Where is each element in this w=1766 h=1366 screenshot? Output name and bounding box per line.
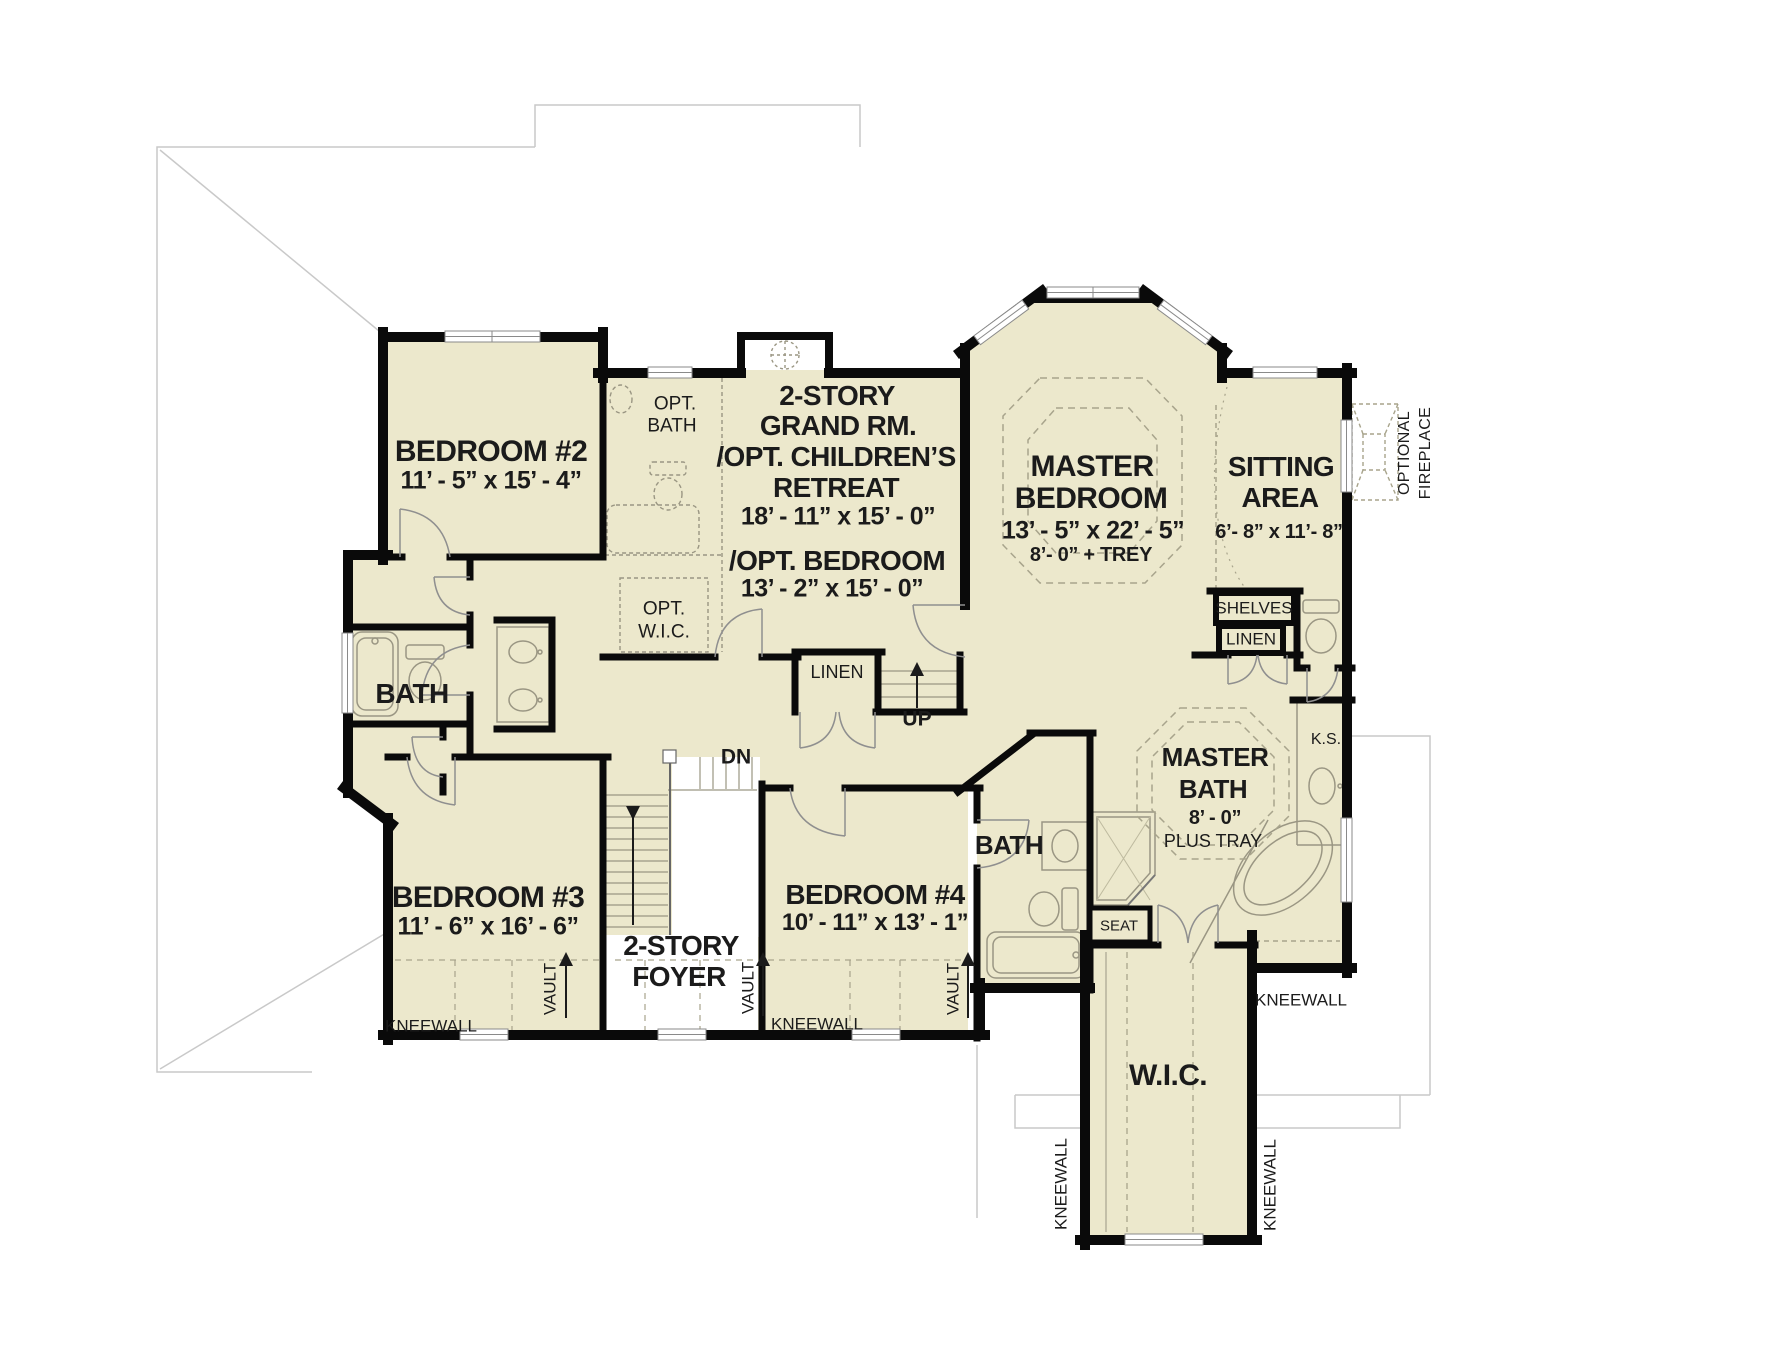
sitting-area-dims: 6’- 8” x 11’- 8” [1215,522,1343,542]
wic-name: W.I.C. [1129,1061,1207,1091]
master-bath-dims: 8’ - 0” [1189,808,1241,828]
bath-center-name: BATH [975,832,1043,858]
optional-fireplace-line1: OPTIONAL [1395,407,1416,500]
master-suite-area [965,291,1352,1240]
opt-wic-label-2: W.I.C. [638,623,690,642]
bedroom2-dims: 11’ - 5” x 15’ - 4” [401,469,582,494]
grand-room-dims: 18’ - 11” x 15’ - 0” [741,505,935,530]
floor-plan-drawing [0,0,1766,1366]
bedroom3-name: BEDROOM #3 [392,883,584,913]
kneewall-label-4: KNEEWALL [1053,1138,1070,1230]
linen-hall-label: LINEN [810,663,863,681]
window [658,1029,706,1040]
bath-left-name: BATH [375,680,448,708]
opt-bath-label-1: OPT. [654,395,696,414]
shelves-label: SHELVES [1215,600,1292,617]
grand-room-name-4: RETREAT [773,474,899,502]
linen-upper-label: LINEN [1226,631,1276,648]
optional-fireplace-label: OPTIONAL FIREPLACE [1395,407,1437,500]
vault-label-2: VAULT [740,962,757,1014]
master-bedroom-ceiling: 8’- 0” + TREY [1030,545,1152,565]
master-bath-name-2: BATH [1179,776,1247,802]
foyer-name-1: 2-STORY [623,932,739,960]
bedroom4-dims: 10’ - 11” x 13’ - 1” [782,911,968,935]
opt-bath-label-2: BATH [647,417,696,436]
opt-bedroom-name: /OPT. BEDROOM [729,547,945,575]
vault-label-3: VAULT [945,963,962,1015]
vault-label-1: VAULT [542,963,559,1015]
bedroom2-name: BEDROOM #2 [395,437,587,467]
opt-bedroom-dims: 13’ - 2” x 15’ - 0” [741,577,923,602]
master-bedroom-dims: 13’ - 5” x 22’ - 5” [1002,519,1184,544]
optional-fireplace-icon [1352,404,1398,500]
master-bath-name-1: MASTER [1162,744,1269,770]
window [1253,367,1317,378]
foyer-name-2: FOYER [632,963,725,991]
window [1341,420,1352,492]
kneewall-label-2: KNEEWALL [771,1016,863,1033]
grand-room-name-2: GRAND RM. [760,412,916,440]
window [1047,287,1139,298]
opt-wic-label-1: OPT. [643,600,685,619]
master-bedroom-name-1: MASTER [1030,452,1153,482]
optional-fireplace-line2: FIREPLACE [1416,407,1437,500]
master-bath-note: PLUS TRAY [1164,832,1262,850]
grand-room-name-1: 2-STORY [779,382,895,410]
kneewall-label-3: KNEEWALL [1255,992,1347,1009]
knee-space-label: K.S. [1311,732,1341,748]
window [1125,1234,1203,1245]
kneewall-label-5: KNEEWALL [1262,1139,1279,1231]
sitting-area-name-1: SITTING [1228,453,1334,481]
floor-plan: BEDROOM #2 11’ - 5” x 15’ - 4” OPT. BATH… [0,0,1766,1366]
window [1341,818,1352,902]
dn-label: DN [721,747,751,768]
seat-label: SEAT [1100,919,1138,934]
master-bedroom-name-2: BEDROOM [1015,484,1167,514]
window [648,367,692,378]
foyer-open-area [672,757,760,937]
up-label: UP [902,709,931,730]
kneewall-label-1: KNEEWALL [385,1018,477,1035]
bedroom4-name: BEDROOM #4 [785,881,964,909]
bedroom3-dims: 11’ - 6” x 16’ - 6” [398,915,579,940]
window [445,331,540,342]
window [342,633,353,713]
grand-room-name-3: /OPT. CHILDREN’S [716,443,955,471]
sitting-area-name-2: AREA [1242,484,1319,512]
